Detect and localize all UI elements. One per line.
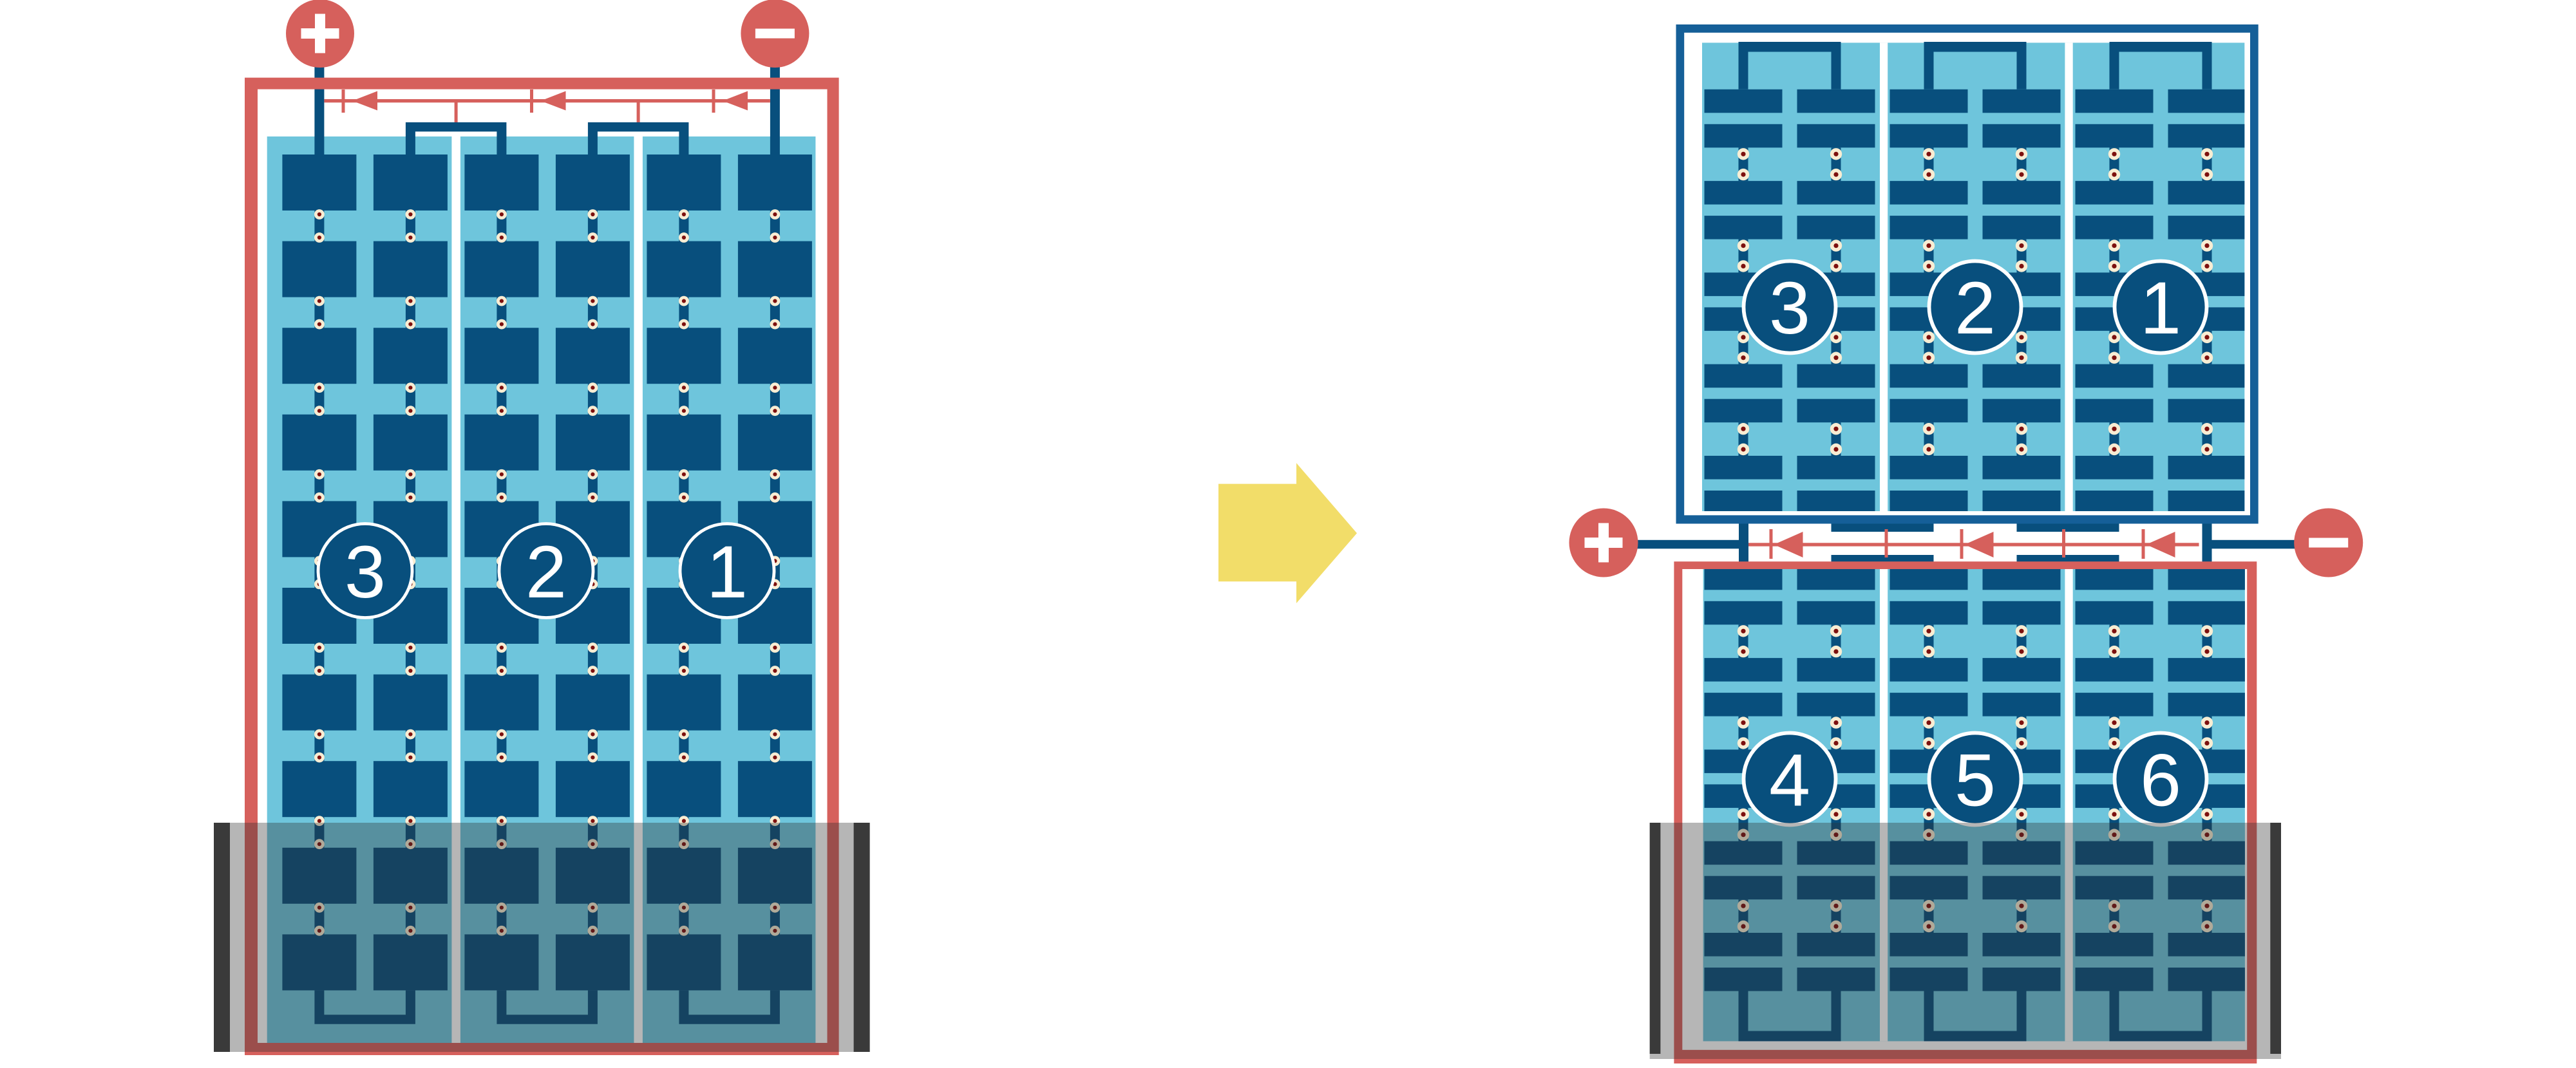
svg-text:2: 2 [526,531,567,614]
svg-text:4: 4 [1769,740,1810,822]
svg-text:5: 5 [1955,740,1996,822]
svg-text:6: 6 [2140,740,2181,822]
svg-text:1: 1 [2140,267,2181,350]
svg-text:3: 3 [345,531,386,614]
svg-text:3: 3 [1769,267,1810,350]
svg-text:2: 2 [1955,267,1996,350]
svg-text:1: 1 [706,531,748,614]
